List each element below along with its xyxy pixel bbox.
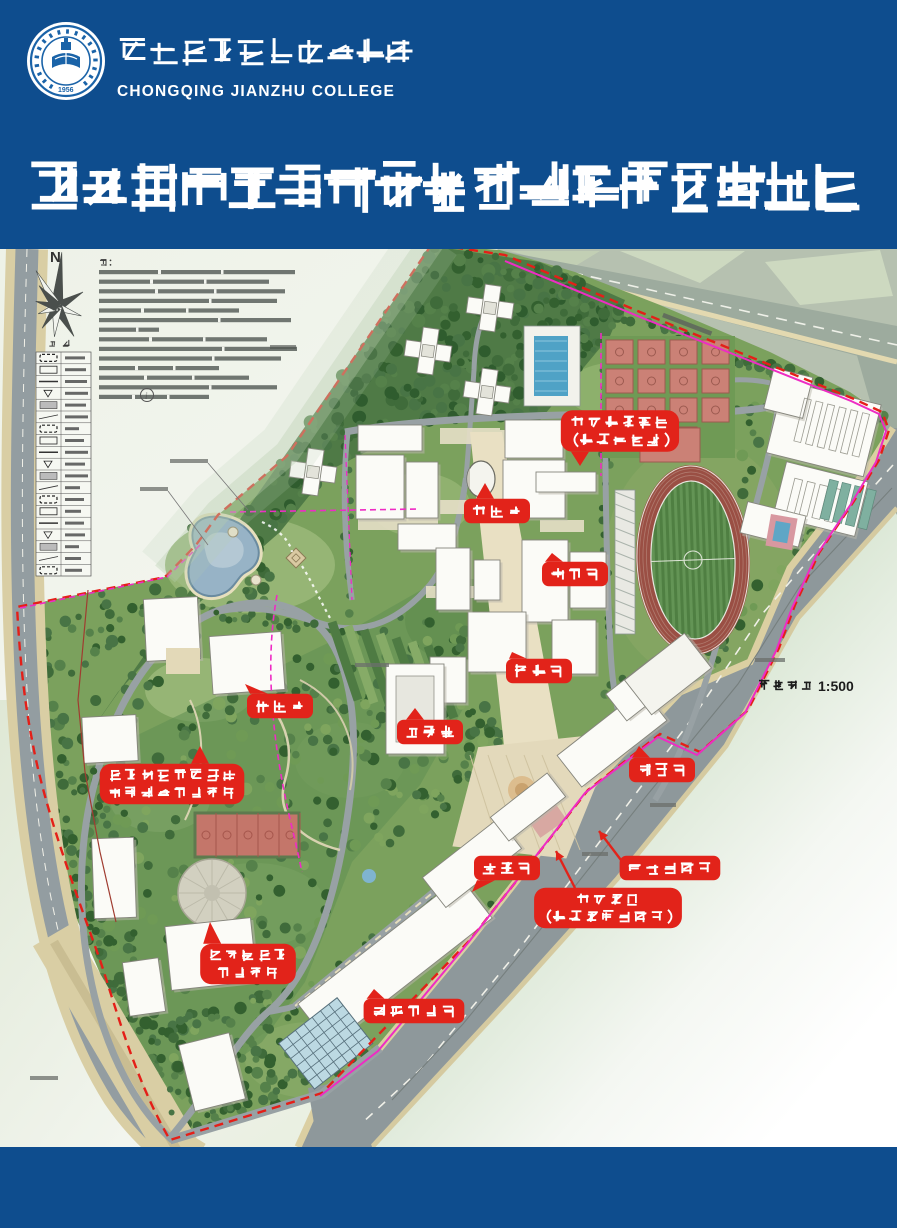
svg-text:CHONGQING JIANZHU COLLEGE: CHONGQING JIANZHU COLLEGE [117,83,395,100]
svg-text:N: N [50,249,61,266]
svg-text:1956: 1956 [58,87,74,94]
svg-text:：: ： [108,258,117,268]
svg-text:1:500: 1:500 [818,678,854,694]
